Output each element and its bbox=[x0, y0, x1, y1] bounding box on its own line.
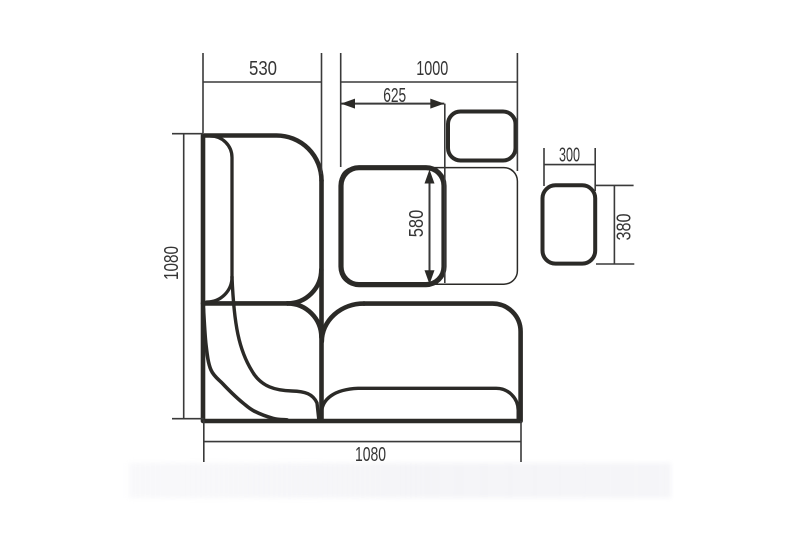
svg-text:300: 300 bbox=[559, 145, 580, 167]
svg-text:625: 625 bbox=[383, 85, 406, 107]
svg-text:1080: 1080 bbox=[355, 444, 386, 466]
svg-text:380: 380 bbox=[614, 214, 636, 241]
svg-text:1000: 1000 bbox=[416, 58, 448, 80]
svg-text:580: 580 bbox=[406, 210, 428, 238]
svg-text:1080: 1080 bbox=[161, 246, 183, 280]
svg-text:530: 530 bbox=[249, 58, 277, 80]
